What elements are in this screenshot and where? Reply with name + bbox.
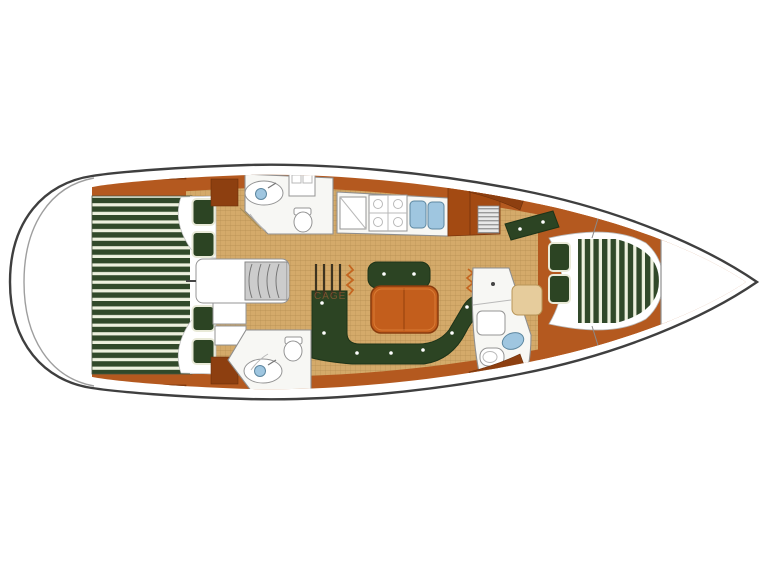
chart-seat <box>512 285 542 315</box>
toilet <box>294 212 312 232</box>
wardrobe <box>211 179 238 206</box>
sailboat-floor-plan: CAGE <box>0 0 768 576</box>
bow-anchor-locker <box>661 237 753 327</box>
galley <box>337 192 448 236</box>
v-berth-pillow <box>549 275 570 303</box>
salon-bench <box>368 262 430 288</box>
floor-plan-image: CAGE <box>0 0 768 576</box>
interior: CAGE <box>92 160 768 406</box>
port-head-bathroom <box>245 172 333 234</box>
vanity <box>477 311 505 335</box>
salon-table <box>371 286 438 333</box>
companionway-engine-box <box>186 259 289 303</box>
head-cabinet <box>289 172 315 196</box>
louvered-locker <box>478 206 499 233</box>
v-berth-pillow <box>549 243 570 271</box>
watermark-text: CAGE <box>314 291 346 302</box>
cabinet <box>213 303 246 324</box>
toilet <box>284 341 302 361</box>
stove <box>369 195 407 231</box>
